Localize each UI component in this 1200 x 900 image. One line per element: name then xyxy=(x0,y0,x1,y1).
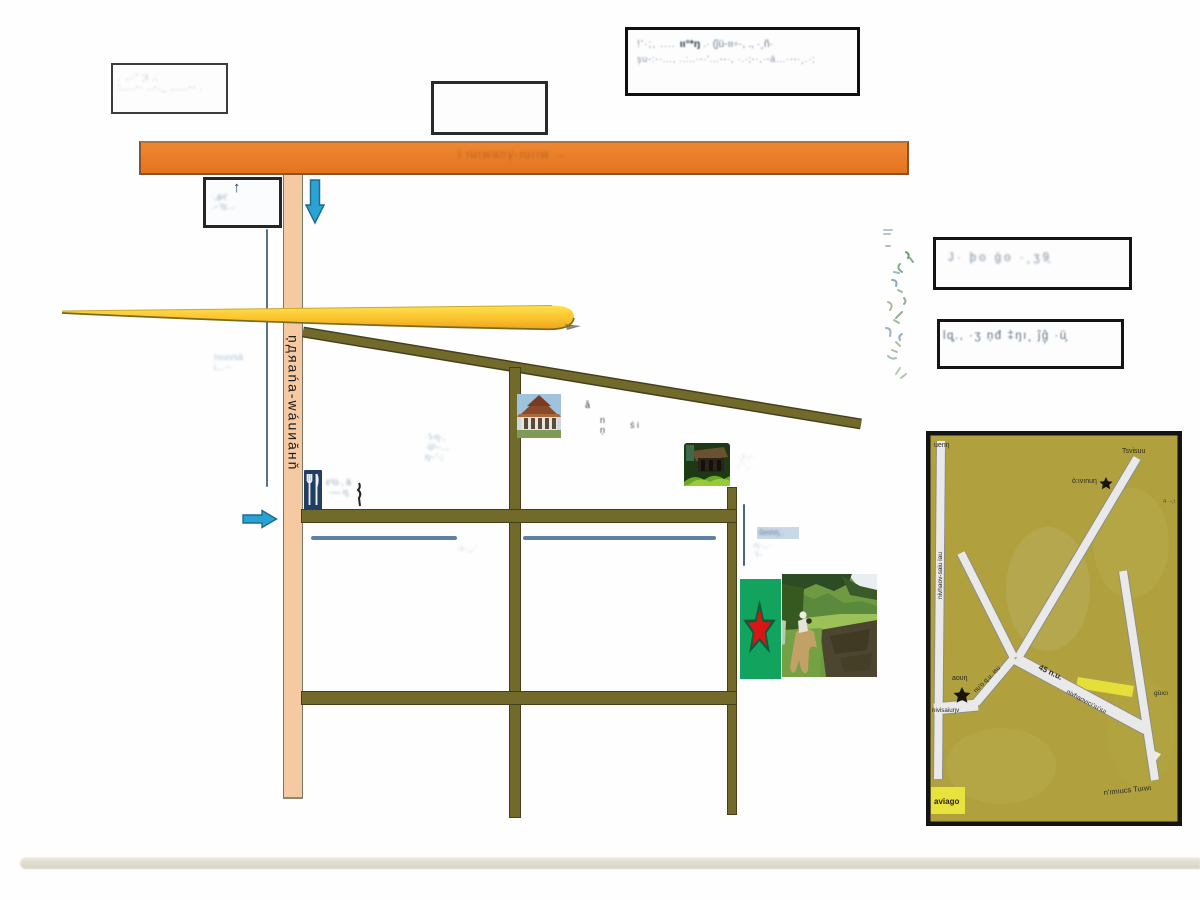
svg-text:aουη: aουη xyxy=(952,675,968,682)
svg-text:gūıcı: gūıcı xyxy=(1154,690,1168,697)
svg-text:ò:ıvınuη: ò:ıvınuη xyxy=(1072,478,1097,485)
svg-text:uenη: uenη xyxy=(934,442,950,449)
svg-text:nivisaiuηv: nivisaiuηv xyxy=(932,707,960,714)
svg-text:4 ·-;i: 4 ·-;i xyxy=(1163,499,1175,505)
svg-text:nivhaov-saiu iau: nivhaov-saiu iau xyxy=(937,552,944,599)
svg-text:aviago: aviago xyxy=(934,797,959,806)
svg-text:Tsvisuu: Tsvisuu xyxy=(1122,448,1145,455)
